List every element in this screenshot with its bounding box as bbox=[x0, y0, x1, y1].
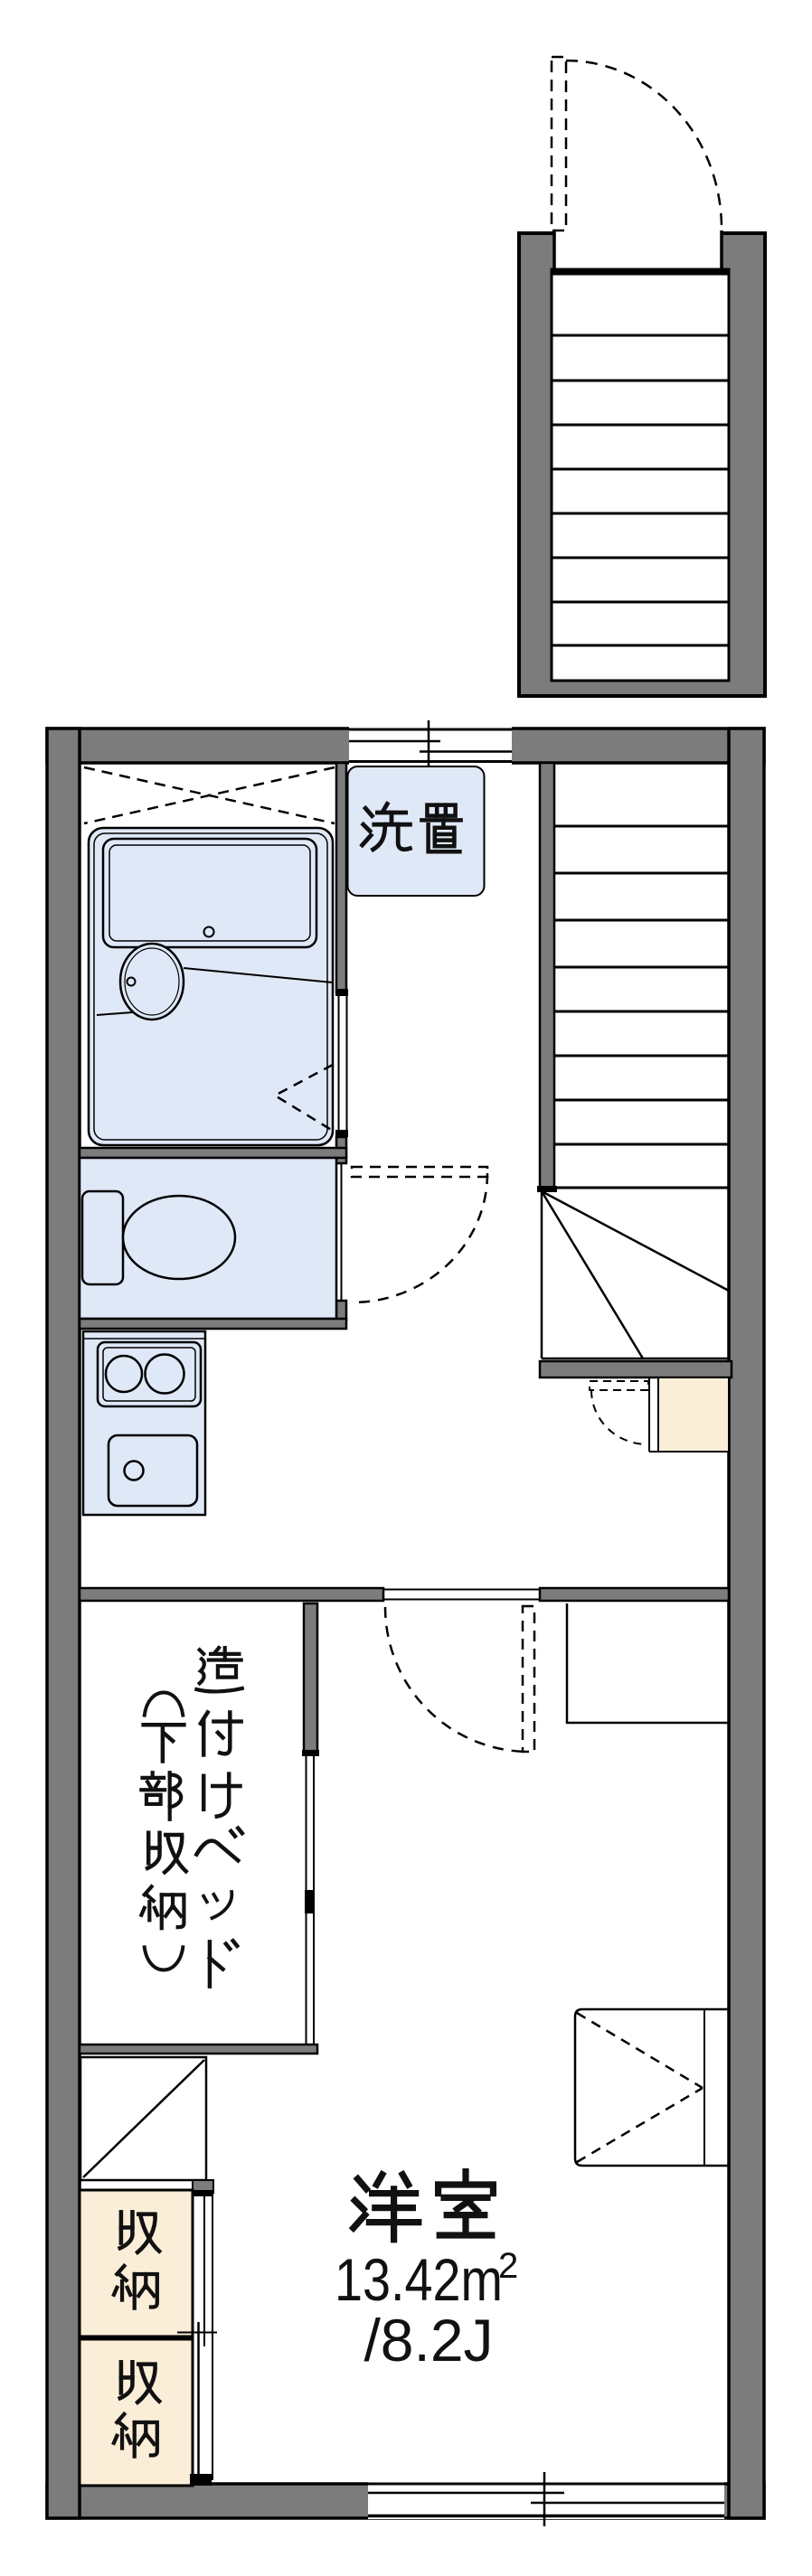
svg-text:2: 2 bbox=[498, 2246, 518, 2286]
svg-text:13.42m: 13.42m bbox=[335, 2246, 503, 2313]
svg-text:/8.2J: /8.2J bbox=[364, 2307, 493, 2374]
